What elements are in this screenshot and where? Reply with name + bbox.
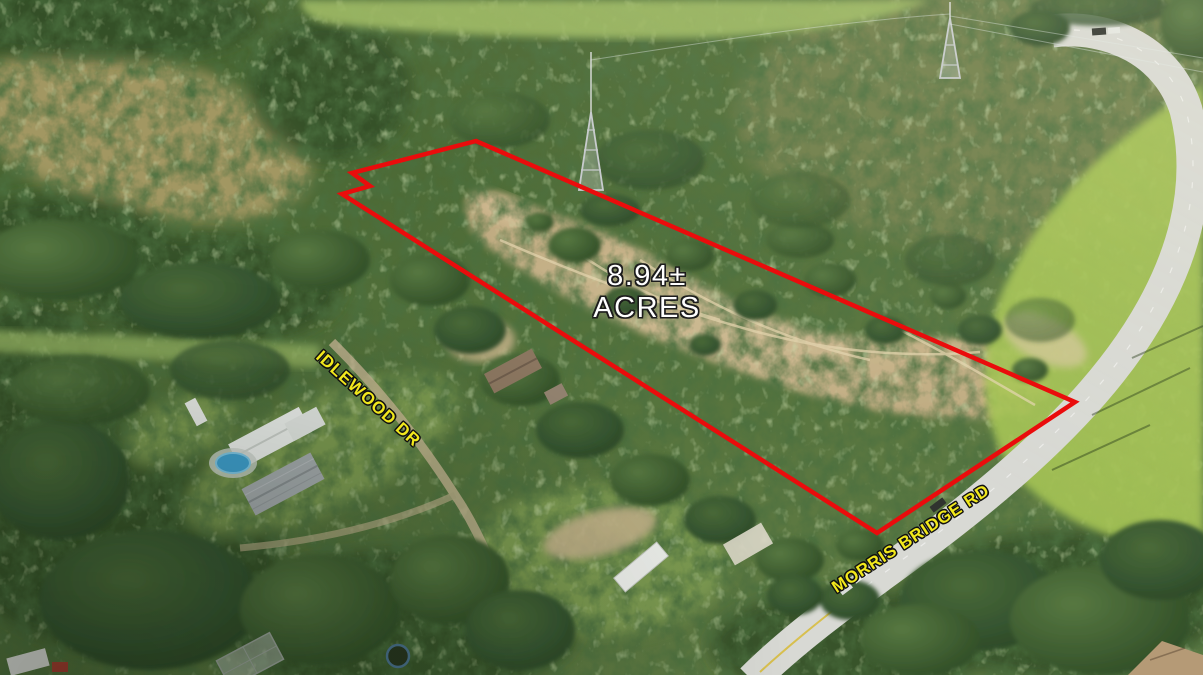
aerial-property-photo: 8.94± ACRES IDLEWOOD DR MORRIS BRIDGE RD bbox=[0, 0, 1203, 675]
scenery-layer bbox=[0, 0, 1203, 675]
corner-vignette bbox=[0, 0, 1203, 675]
acreage-unit: ACRES bbox=[593, 292, 700, 324]
acreage-value: 8.94± bbox=[593, 260, 700, 292]
acreage-label: 8.94± ACRES bbox=[593, 260, 700, 324]
